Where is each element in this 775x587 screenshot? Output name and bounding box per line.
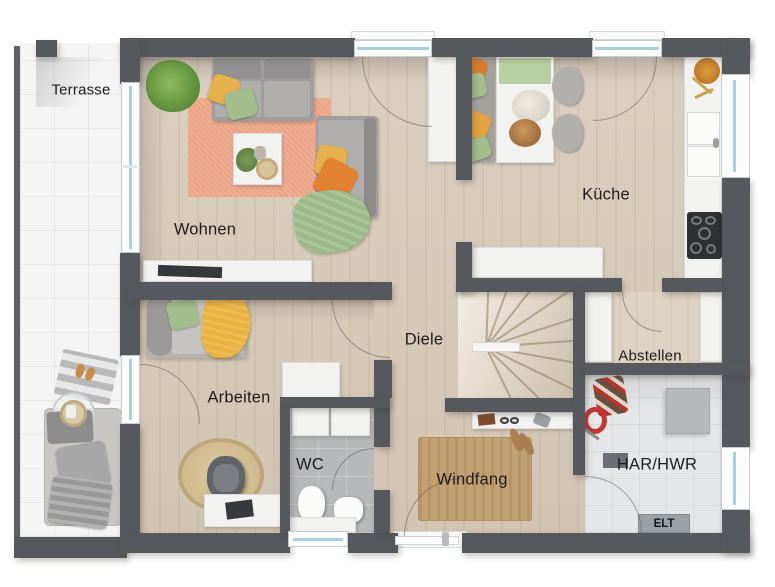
- exterior-wall: [120, 533, 290, 553]
- glass-pane: [293, 538, 343, 541]
- room-label-wohnen: Wohnen: [174, 221, 236, 240]
- glass-pane: [595, 47, 659, 50]
- storage-shelf: [700, 292, 722, 362]
- laptop: [225, 499, 254, 519]
- faucet: [713, 138, 719, 148]
- dining-cabinet: [428, 57, 457, 162]
- stair-railing: [472, 342, 520, 352]
- interior-wall: [445, 398, 573, 412]
- chair: [552, 67, 583, 105]
- exterior-wall: [432, 38, 593, 57]
- office-closet: [282, 362, 340, 398]
- interior-wall: [573, 288, 585, 398]
- glass-pane: [733, 80, 736, 172]
- glass-pane: [357, 47, 429, 50]
- terrace-wall: [14, 537, 127, 558]
- entry-door-leaf: [395, 536, 459, 545]
- floor-plan: Terrasse Wohnen Küche Diele Arbeiten WC …: [0, 0, 775, 587]
- exterior-wall: [120, 424, 140, 536]
- door-handle: [442, 532, 449, 546]
- pillow-striped: [47, 474, 113, 530]
- vanity-cabinet: [331, 406, 370, 436]
- exterior-wall: [120, 253, 140, 356]
- exterior-wall: [722, 178, 750, 448]
- exterior-wall: [722, 38, 750, 75]
- plant: [146, 60, 200, 112]
- vanity-cabinet: [292, 406, 329, 436]
- glass-pane: [129, 359, 132, 420]
- storage-shelf: [583, 292, 612, 362]
- exterior-wall: [462, 533, 750, 553]
- elt-panel-label: ELT: [654, 518, 675, 530]
- utility-window: [721, 447, 750, 510]
- interior-wall: [280, 408, 290, 533]
- interior-wall: [456, 57, 472, 180]
- door-divider: [123, 165, 138, 168]
- room-label-abstellen: Abstellen: [618, 348, 682, 365]
- room-label-har-hwr: HAR/HWR: [617, 456, 697, 475]
- tv: [158, 265, 222, 278]
- kitchen-sink: [687, 146, 720, 177]
- interior-wall: [374, 490, 390, 533]
- interior-wall: [127, 282, 392, 300]
- room-label-wc: WC: [296, 456, 324, 475]
- sunglasses: [500, 417, 509, 424]
- wall: [36, 40, 57, 57]
- interior-wall: [662, 278, 722, 292]
- room-label-arbeiten: Arbeiten: [207, 389, 270, 408]
- bench-cushion: [499, 58, 551, 84]
- room-label-terrasse: Terrasse: [51, 82, 110, 99]
- exterior-wall: [348, 533, 398, 553]
- wallet: [477, 413, 495, 426]
- washing-machine: [666, 388, 710, 434]
- sunglasses: [510, 417, 519, 424]
- kitchen-window: [721, 74, 750, 178]
- exterior-wall: [120, 38, 140, 84]
- glass-pane: [733, 452, 736, 505]
- window-sill: [589, 31, 665, 40]
- window-sill: [351, 31, 435, 40]
- decor-tray: [256, 158, 278, 180]
- exterior-wall: [120, 38, 355, 57]
- room-label-diele: Diele: [405, 331, 444, 350]
- tray-item: [66, 405, 76, 418]
- interior-wall: [573, 398, 585, 475]
- decor-bowl: [509, 119, 541, 147]
- cooktop: [687, 212, 722, 259]
- interior-wall: [374, 360, 392, 398]
- chair: [552, 114, 583, 152]
- exterior-wall: [722, 510, 750, 553]
- interior-wall: [280, 397, 390, 408]
- flower-bouquet: [512, 90, 550, 122]
- interior-wall: [456, 278, 622, 292]
- kitchen-island-counter: [472, 247, 603, 278]
- room-label-kueche: Küche: [582, 186, 630, 205]
- room-label-windfang: Windfang: [436, 471, 507, 490]
- stairs: [458, 292, 573, 398]
- interior-wall: [583, 363, 750, 375]
- terrace-wall: [14, 46, 20, 558]
